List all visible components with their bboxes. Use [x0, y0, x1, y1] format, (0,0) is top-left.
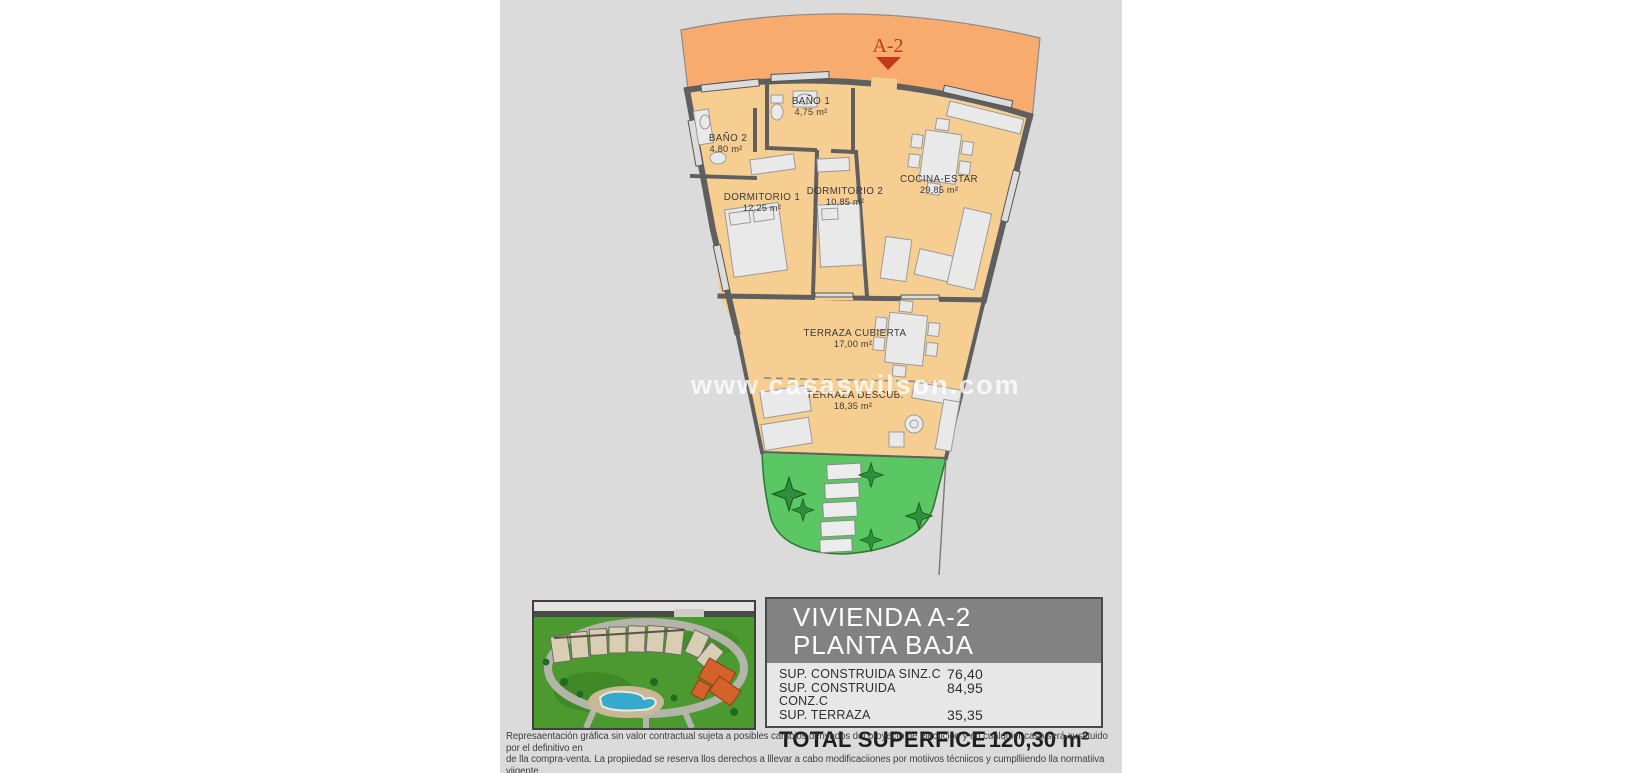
room-area-bath2: 4,80 m²: [710, 144, 743, 154]
room-label-kitchen: COCINA-ESTAR: [900, 174, 978, 185]
disclaimer: Represaentación gráfica sin valor contra…: [506, 731, 1118, 773]
panel-title-line1: VIVIENDA A-2: [793, 603, 1101, 631]
site-plan-thumbnail: [532, 600, 756, 730]
room-label-bedroom1: DORMITORIO 1: [724, 192, 800, 203]
room-label-bath2: BAÑO 2: [709, 133, 747, 144]
surface-row-label: SUP. CONSTRUIDA CONZ.C: [779, 682, 947, 709]
surface-row: SUP. TERRAZA 35,35: [779, 709, 1101, 723]
room-label-bath1: BAÑO 1: [792, 96, 830, 107]
info-panel-header: VIVIENDA A-2 PLANTA BAJA: [767, 599, 1101, 663]
garden-area: [762, 452, 946, 575]
room-label-covered-terrace: TERRAZA CUBIERTA: [804, 328, 907, 339]
plan-sheet-inner: A-2: [515, 0, 1123, 773]
surface-row-value: 84,95: [947, 682, 983, 709]
page: A-2: [0, 0, 1638, 773]
room-label-bedroom2: DORMITORIO 2: [807, 186, 883, 197]
surface-row: SUP. CONSTRUIDA SINZ.C 76,40: [779, 668, 1101, 682]
surface-row-value: 35,35: [947, 709, 983, 723]
room-area-bedroom1: 12,25 m²: [743, 203, 781, 213]
site-plan-render: [534, 602, 754, 728]
info-panel: VIVIENDA A-2 PLANTA BAJA SUP. CONSTRUIDA…: [765, 597, 1103, 728]
plan-sheet: A-2: [500, 0, 1122, 773]
room-area-covered-terrace: 17,00 m²: [834, 339, 872, 349]
surface-row-label: SUP. CONSTRUIDA SINZ.C: [779, 668, 947, 682]
disclaimer-line2: de lla compra-venta. La propiiedad se re…: [506, 754, 1118, 773]
watermark: www.casaswilson.com: [691, 370, 1021, 401]
disclaimer-line1: Represaentación gráfica sin valor contra…: [506, 731, 1118, 754]
panel-title-line2: PLANTA BAJA: [793, 631, 1101, 659]
room-area-kitchen: 29,85 m²: [920, 185, 958, 195]
floor-plan-drawing: A-2: [515, 0, 1123, 580]
room-area-open-terrace: 18,35 m²: [834, 401, 872, 411]
unit-marker-label: A-2: [872, 35, 903, 57]
surface-row: SUP. CONSTRUIDA CONZ.C 84,95: [779, 682, 1101, 709]
room-area-bedroom2: 10,85 m²: [826, 197, 864, 207]
surface-row-label: SUP. TERRAZA: [779, 709, 947, 723]
room-area-bath1: 4,75 m²: [795, 107, 828, 117]
top-road: [534, 611, 754, 617]
pool: [588, 686, 664, 718]
